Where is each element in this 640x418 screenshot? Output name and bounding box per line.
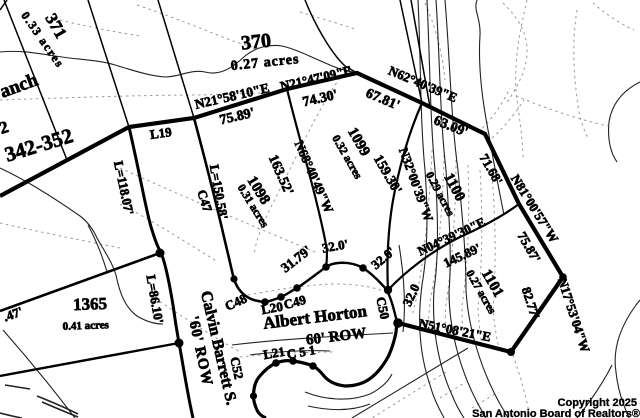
- svg-text:L19: L19: [149, 124, 173, 142]
- svg-text:1365: 1365: [73, 294, 108, 314]
- svg-text:San Antonio Board of Realtors®: San Antonio Board of Realtors®: [472, 408, 640, 418]
- svg-text:370: 370: [240, 30, 272, 55]
- svg-text:0.41 acres: 0.41 acres: [62, 319, 109, 333]
